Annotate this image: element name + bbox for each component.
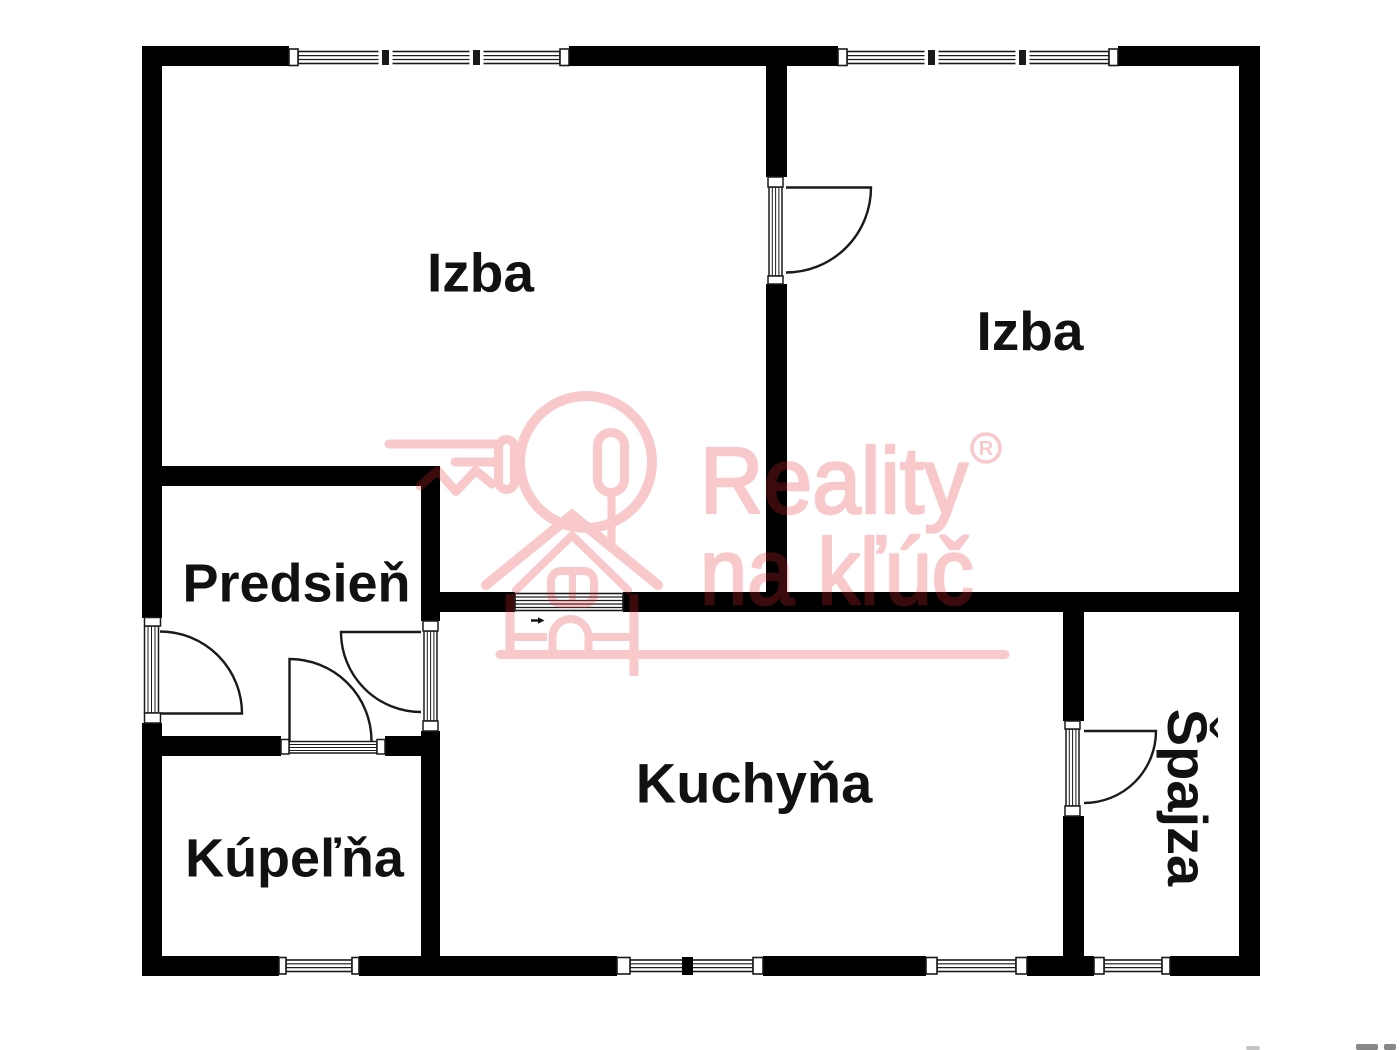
svg-text:Kúpeľňa: Kúpeľňa [185, 829, 405, 889]
svg-text:Reality: Reality [700, 428, 968, 533]
svg-text:Izba: Izba [427, 242, 534, 304]
svg-text:na kľúč: na kľúč [700, 519, 974, 624]
svg-text:Kuchyňa: Kuchyňa [636, 752, 873, 815]
svg-text:R: R [979, 438, 994, 460]
svg-text:Predsieň: Predsieň [182, 554, 410, 614]
svg-text:Špajza: Špajza [1156, 709, 1219, 887]
svg-text:Izba: Izba [977, 300, 1084, 362]
